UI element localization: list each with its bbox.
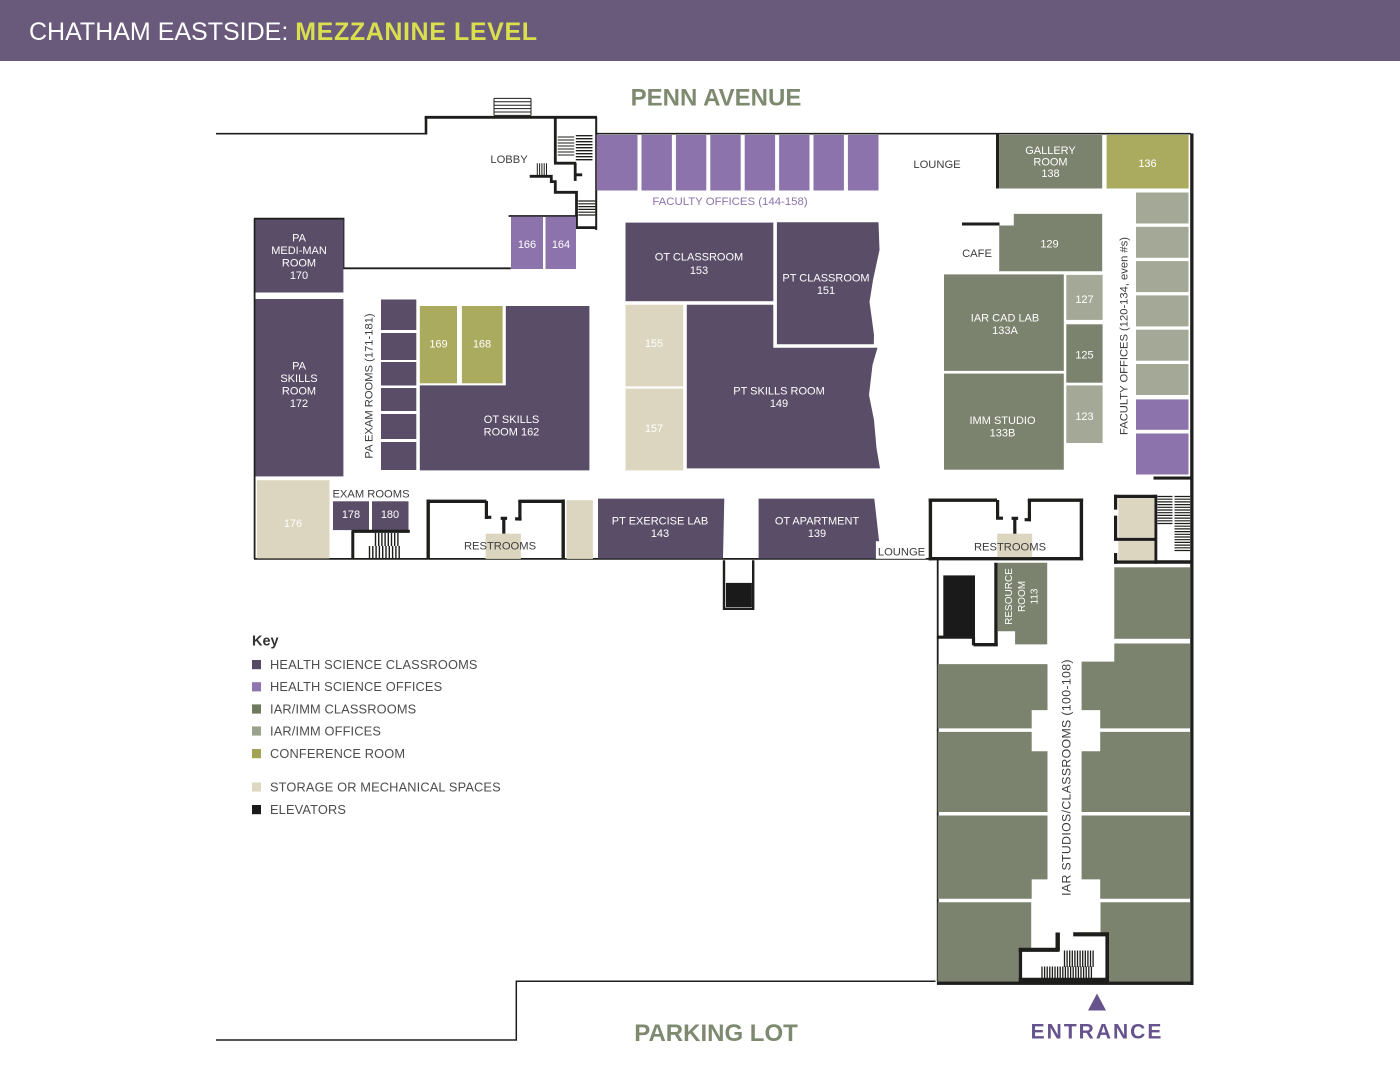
svg-text:EXAM ROOMS: EXAM ROOMS (332, 489, 409, 501)
svg-text:PT EXERCISE LAB: PT EXERCISE LAB (612, 516, 708, 528)
svg-text:PA EXAM ROOMS (171-181): PA EXAM ROOMS (171-181) (364, 313, 376, 459)
svg-text:IAR/IMM CLASSROOMS: IAR/IMM CLASSROOMS (270, 701, 416, 716)
svg-text:CHATHAM EASTSIDE: MEZZANINE LE: CHATHAM EASTSIDE: MEZZANINE LEVEL (29, 18, 538, 46)
svg-text:IAR CAD LAB: IAR CAD LAB (971, 313, 1039, 325)
svg-text:127: 127 (1075, 294, 1093, 306)
svg-text:170: 170 (290, 270, 308, 282)
svg-text:IMM STUDIO: IMM STUDIO (970, 415, 1036, 427)
svg-text:MEDI-MAN: MEDI-MAN (271, 245, 327, 257)
svg-text:133A: 133A (992, 325, 1018, 337)
svg-text:IAR/IMM OFFICES: IAR/IMM OFFICES (270, 723, 381, 738)
svg-text:OT APARTMENT: OT APARTMENT (775, 516, 860, 528)
svg-text:169: 169 (429, 339, 447, 351)
svg-text:157: 157 (645, 423, 663, 435)
svg-text:HEALTH SCIENCE OFFICES: HEALTH SCIENCE OFFICES (270, 679, 442, 694)
svg-text:PT CLASSROOM: PT CLASSROOM (782, 273, 869, 285)
svg-text:176: 176 (284, 518, 302, 530)
svg-text:125: 125 (1075, 350, 1093, 362)
svg-text:ROOM: ROOM (282, 258, 316, 270)
svg-text:ELEVATORS: ELEVATORS (270, 802, 346, 817)
svg-text:PENN AVENUE: PENN AVENUE (631, 85, 802, 112)
svg-text:172: 172 (290, 398, 308, 410)
svg-text:143: 143 (651, 528, 669, 540)
svg-text:IAR STUDIOS/CLASSROOMS (100-10: IAR STUDIOS/CLASSROOMS (100-108) (1060, 659, 1074, 896)
svg-text:123: 123 (1075, 411, 1093, 423)
svg-text:CONFERENCE ROOM: CONFERENCE ROOM (270, 746, 405, 761)
svg-text:166: 166 (518, 239, 536, 251)
svg-text:ROOM: ROOM (282, 386, 316, 398)
svg-text:149: 149 (770, 398, 788, 410)
svg-text:PARKING LOT: PARKING LOT (634, 1020, 798, 1047)
svg-text:151: 151 (817, 285, 835, 297)
svg-text:LOUNGE: LOUNGE (913, 159, 960, 171)
svg-text:ROOM: ROOM (1033, 157, 1067, 169)
svg-text:Key: Key (252, 634, 279, 650)
svg-text:GALLERY: GALLERY (1025, 145, 1076, 157)
svg-text:STORAGE OR MECHANICAL SPACES: STORAGE OR MECHANICAL SPACES (270, 779, 501, 794)
svg-text:ENTRANCE: ENTRANCE (1031, 1021, 1164, 1044)
svg-text:FACULTY OFFICES (144-158): FACULTY OFFICES (144-158) (652, 196, 808, 208)
svg-text:180: 180 (381, 509, 399, 521)
svg-text:PA: PA (292, 361, 307, 373)
svg-text:HEALTH SCIENCE CLASSROOMS: HEALTH SCIENCE CLASSROOMS (270, 657, 478, 672)
svg-text:138: 138 (1041, 168, 1059, 180)
svg-text:129: 129 (1040, 239, 1058, 251)
svg-text:164: 164 (552, 239, 570, 251)
svg-text:RESTROOMS: RESTROOMS (464, 541, 536, 553)
svg-text:136: 136 (1138, 158, 1156, 170)
svg-text:OT CLASSROOM: OT CLASSROOM (655, 252, 743, 264)
svg-text:RESOURCE: RESOURCE (1004, 568, 1015, 625)
svg-text:168: 168 (473, 339, 491, 351)
svg-text:RESTROOMS: RESTROOMS (974, 542, 1046, 554)
svg-text:139: 139 (808, 528, 826, 540)
svg-text:LOBBY: LOBBY (490, 154, 528, 166)
svg-text:155: 155 (645, 338, 663, 350)
svg-text:133B: 133B (990, 428, 1016, 440)
svg-text:LOUNGE: LOUNGE (878, 547, 925, 559)
svg-text:SKILLS: SKILLS (280, 373, 317, 385)
svg-text:113: 113 (1030, 588, 1041, 604)
svg-text:FACULTY OFFICES (120-134, even: FACULTY OFFICES (120-134, even #s) (1119, 237, 1131, 435)
svg-text:ROOM 162: ROOM 162 (484, 427, 540, 439)
svg-text:ROOM: ROOM (1017, 581, 1028, 612)
svg-text:178: 178 (342, 509, 360, 521)
svg-text:PA: PA (292, 233, 307, 245)
svg-text:153: 153 (690, 265, 708, 277)
svg-text:OT SKILLS: OT SKILLS (484, 414, 539, 426)
svg-text:CAFE: CAFE (962, 248, 992, 260)
svg-text:PT SKILLS ROOM: PT SKILLS ROOM (733, 386, 825, 398)
